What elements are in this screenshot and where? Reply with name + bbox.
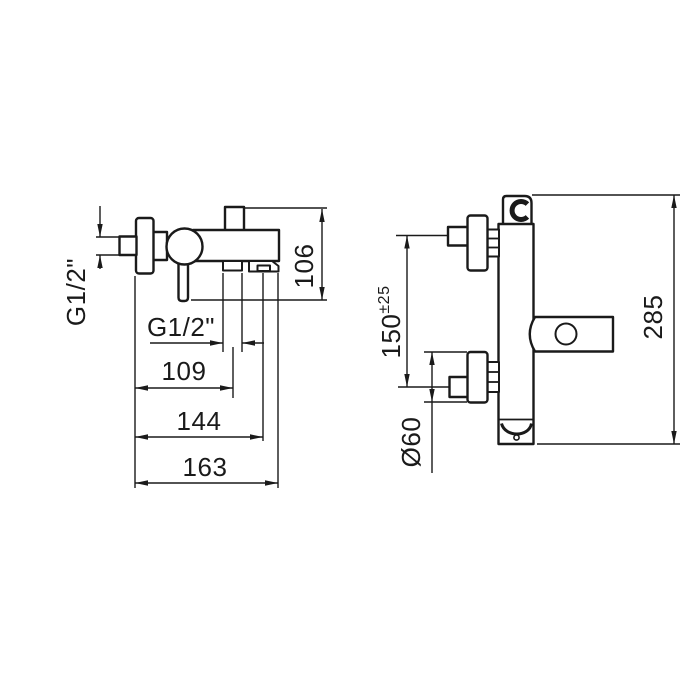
lower-inlet-nipple (450, 377, 469, 397)
arrowhead (242, 340, 255, 345)
front-view: 150±25 Ø60 285 (376, 195, 681, 473)
arrowhead (404, 236, 409, 249)
side-view: G1/2" G1/2" 109 144 163 106 (61, 206, 327, 488)
label-285: 285 (638, 295, 668, 340)
arrowhead (220, 385, 233, 390)
inlet-spacing-tolerance: ±25 (376, 286, 393, 314)
lever-screw-cap (556, 324, 577, 345)
label-109: 109 (162, 356, 207, 386)
arrowhead (671, 195, 676, 208)
arrowhead (429, 389, 434, 402)
arrowhead (135, 434, 148, 439)
arrowhead (319, 287, 324, 300)
arrowhead (97, 255, 102, 268)
label-outlet-thread: G1/2" (147, 312, 215, 342)
technical-drawing-canvas: G1/2" G1/2" 109 144 163 106 (0, 0, 700, 700)
label-106: 106 (289, 244, 319, 289)
arrowhead (319, 209, 324, 222)
label-163: 163 (183, 452, 228, 482)
label-inlet-thread: G1/2" (61, 258, 91, 326)
spout-aerator-side (258, 266, 271, 272)
shower-outlet-connection (225, 207, 244, 231)
arrowhead (97, 224, 102, 237)
mixer-technical-drawing: G1/2" G1/2" 109 144 163 106 (0, 0, 700, 700)
upper-escutcheon-front (468, 216, 488, 271)
upper-inlet-nipple (448, 227, 468, 246)
upper-union-nut (487, 230, 499, 257)
label-flange-diameter: Ø60 (396, 417, 426, 468)
mixer-column-front (499, 224, 534, 444)
lower-escutcheon-front (468, 352, 488, 403)
cartridge-ball-body (167, 229, 203, 265)
lower-union-nut (487, 362, 499, 392)
hose-outlet-side (223, 261, 242, 271)
arrowhead (135, 480, 148, 485)
wall-escutcheon-side (136, 218, 154, 274)
arrowhead (250, 434, 263, 439)
wall-union-adapter-side (153, 232, 167, 260)
arrowhead (135, 385, 148, 390)
label-inlet-spacing: 150±25 (376, 286, 407, 359)
arrowhead (429, 352, 434, 365)
arrowhead (265, 480, 278, 485)
inlet-spacing-value: 150 (376, 314, 406, 359)
spout-outlet-hole (514, 435, 519, 440)
arrowhead (671, 431, 676, 444)
mixer-body-side (193, 230, 279, 261)
arrowhead (404, 374, 409, 387)
label-144: 144 (177, 406, 222, 436)
inlet-nipple-side (120, 237, 137, 256)
